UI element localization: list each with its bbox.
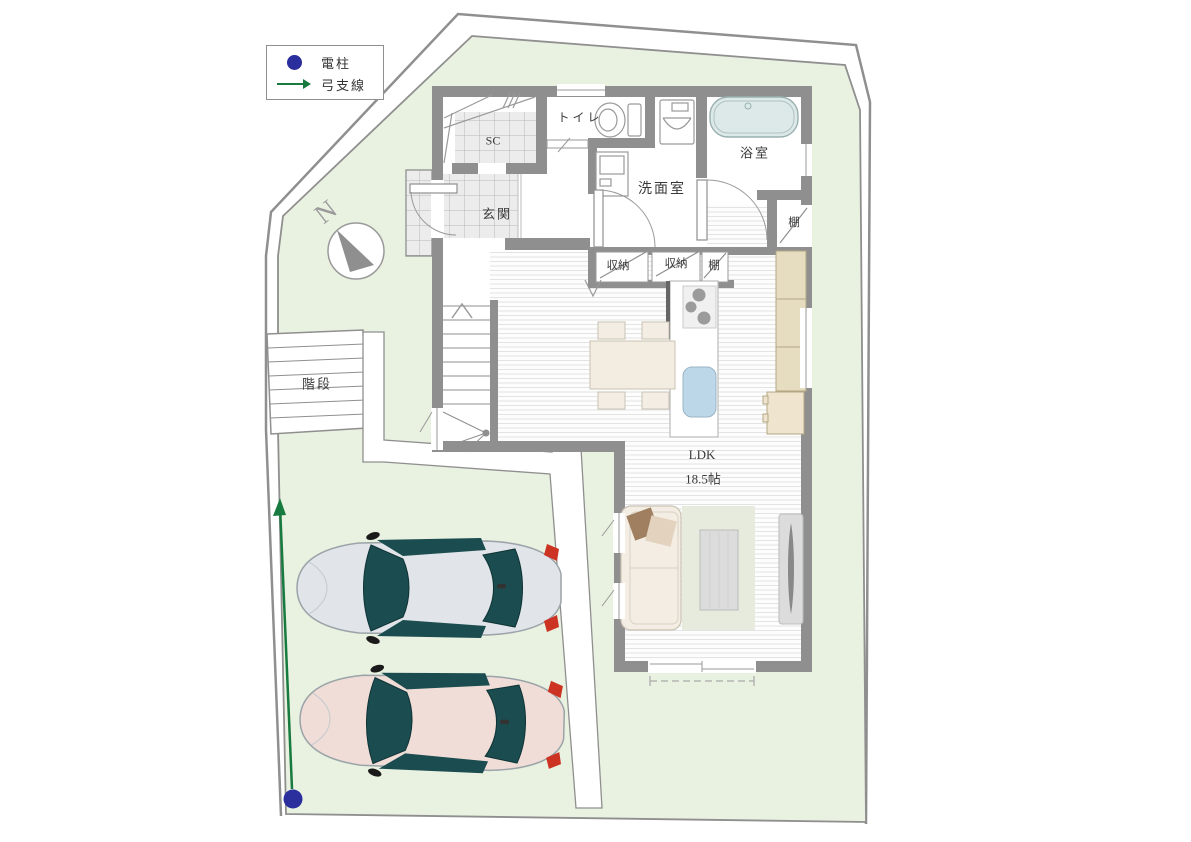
chair: [642, 322, 669, 339]
legend: 電柱 弓支線: [266, 45, 384, 100]
floor-plan-drawing: [0, 0, 1191, 842]
hallway-floor: [707, 205, 777, 247]
legend-wire-label: 弓支線: [321, 75, 366, 94]
legend-pole-label: 電柱: [321, 53, 351, 72]
refrigerator: [763, 392, 804, 434]
room-label-outdoor-stairs: 階段: [302, 374, 332, 393]
compass: [328, 223, 384, 279]
room-label-storage-left: 収納: [607, 257, 630, 273]
tv-stand: [779, 514, 803, 624]
coffee-table: [700, 530, 738, 610]
wire-arrow-icon: [277, 78, 311, 90]
chair: [642, 392, 669, 409]
porch-floor: [406, 170, 432, 256]
room-label-ldk: LDK: [689, 447, 716, 463]
washbasin-icon: [596, 152, 628, 196]
legend-item-pole: 電柱: [277, 51, 383, 73]
room-label-washroom: 洗面室: [638, 178, 686, 198]
legend-item-wire: 弓支線: [277, 73, 383, 95]
stove-burner: [686, 302, 697, 313]
utility-pole-dot: [284, 790, 303, 809]
pole-dot-icon: [277, 55, 311, 70]
chair: [598, 392, 625, 409]
room-label-shoe-closet: SC: [486, 134, 501, 149]
room-label-entrance: 玄関: [482, 204, 512, 223]
kitchen-sink: [683, 367, 716, 417]
car-silver: [297, 531, 561, 646]
room-label-shelf-row: 棚: [708, 257, 720, 273]
room-label-ldk-size: 18.5帖: [685, 469, 721, 488]
room-label-bathroom: 浴室: [740, 143, 770, 162]
washing-machine-icon: [660, 100, 694, 144]
chair: [598, 322, 625, 339]
stove-burner: [693, 289, 706, 302]
room-label-shelf-nook: 棚: [788, 214, 800, 230]
bathtub-icon: [710, 97, 798, 137]
sofa: [621, 506, 681, 630]
room-label-toilet: トイレ: [557, 109, 602, 126]
dining-table: [590, 341, 675, 389]
floor-plan-page: 電柱 弓支線 N SC トイレ 浴室 洗面室 玄関 収納 収納 棚 棚 階段 L…: [0, 0, 1191, 842]
stove-burner: [698, 312, 711, 325]
room-label-storage-right: 収納: [665, 255, 688, 271]
